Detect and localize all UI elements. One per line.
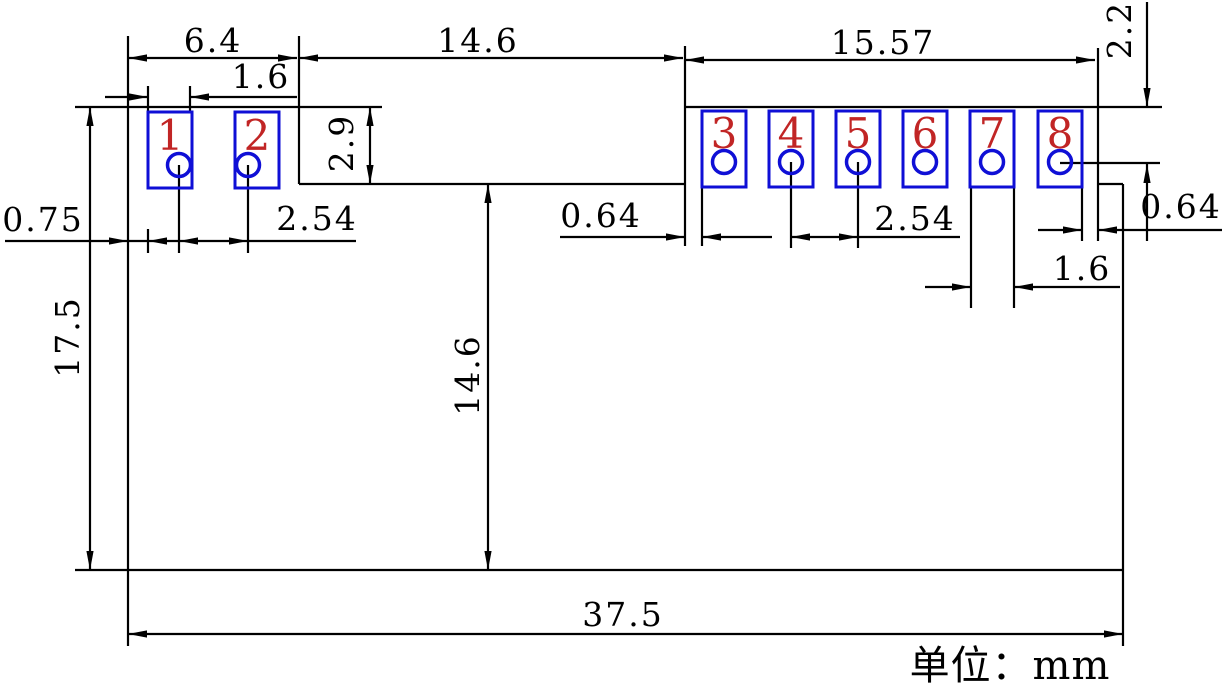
dimension-arrow-icon <box>179 237 198 244</box>
dim-label-left-edge-to-pad: 0.75 <box>2 200 83 239</box>
dimension-arrow-icon <box>1104 630 1123 637</box>
dimension-arrow-icon <box>129 93 148 100</box>
dimension-arrow-icon <box>839 233 858 240</box>
pad-number-4: 4 <box>778 109 805 158</box>
pad-number-2: 2 <box>244 111 271 160</box>
dimension-arrow-icon <box>1014 283 1033 290</box>
dimension-arrow-icon <box>1143 88 1150 107</box>
dimension-drawing-page: 6.4 1.6 14.6 15.57 2.2 2.9 0.75 2.54 0.6… <box>0 0 1225 692</box>
pad-number-5: 5 <box>845 109 872 158</box>
dim-label-right-top-offset: 2.2 <box>1100 1 1139 59</box>
dimension-arrow-icon <box>366 107 373 126</box>
dimension-arrow-icon <box>86 551 93 570</box>
footprint-dimension-drawing: 6.4 1.6 14.6 15.57 2.2 2.9 0.75 2.54 0.6… <box>0 0 1225 692</box>
dimension-arrow-icon <box>128 54 147 61</box>
pad-number-7: 7 <box>979 109 1006 158</box>
dimension-arrow-icon <box>702 233 721 240</box>
dim-label-middle-gap: 0.64 <box>560 196 641 235</box>
pad-number-6: 6 <box>912 109 939 158</box>
pad-number-1: 1 <box>157 111 184 160</box>
pad-number-3: 3 <box>711 109 738 158</box>
dimension-arrow-icon <box>685 56 704 63</box>
dimension-arrow-icon <box>366 165 373 184</box>
dim-label-right-pin-pitch: 2.54 <box>874 199 955 238</box>
drawing-lines-and-pads <box>5 2 1222 646</box>
dim-label-total-height: 17.5 <box>48 296 87 377</box>
dimension-arrow-icon <box>1063 226 1082 233</box>
dimension-arrow-icon <box>190 93 209 100</box>
dimension-arrow-icon <box>1076 56 1095 63</box>
dim-label-pad7-width: 1.6 <box>1053 249 1111 288</box>
dim-label-left-pin-pitch: 2.54 <box>276 199 357 238</box>
dimension-arrow-icon <box>299 54 318 61</box>
dimension-arrow-icon <box>109 237 128 244</box>
dimension-arrow-icon <box>791 233 810 240</box>
dimension-arrow-icon <box>229 237 248 244</box>
dimension-arrow-icon <box>86 107 93 126</box>
unit-note: 单位：mm <box>910 643 1111 689</box>
dim-label-total-width: 37.5 <box>582 595 663 634</box>
dimension-arrow-icon <box>484 184 491 203</box>
dimension-arrow-icon <box>148 237 167 244</box>
dim-label-top-right-width: 15.57 <box>831 23 935 62</box>
dim-label-top-left-width: 6.4 <box>184 21 242 60</box>
dimension-arrow-icon <box>952 283 971 290</box>
dim-label-lower-body-height: 14.6 <box>448 334 487 415</box>
dim-label-pad-area-height: 2.9 <box>322 114 361 172</box>
dimension-arrow-icon <box>1143 164 1150 183</box>
dimension-arrow-icon <box>664 54 683 61</box>
pad-number-8: 8 <box>1047 109 1074 158</box>
dim-label-top-middle-width: 14.6 <box>437 21 518 60</box>
dim-label-right-gap: 0.64 <box>1140 187 1221 226</box>
dimension-arrow-icon <box>1098 226 1117 233</box>
dimension-arrow-icon <box>128 630 147 637</box>
dimension-arrow-icon <box>484 551 491 570</box>
dimension-arrow-icon <box>666 233 685 240</box>
dim-label-pad1-width: 1.6 <box>232 57 290 96</box>
